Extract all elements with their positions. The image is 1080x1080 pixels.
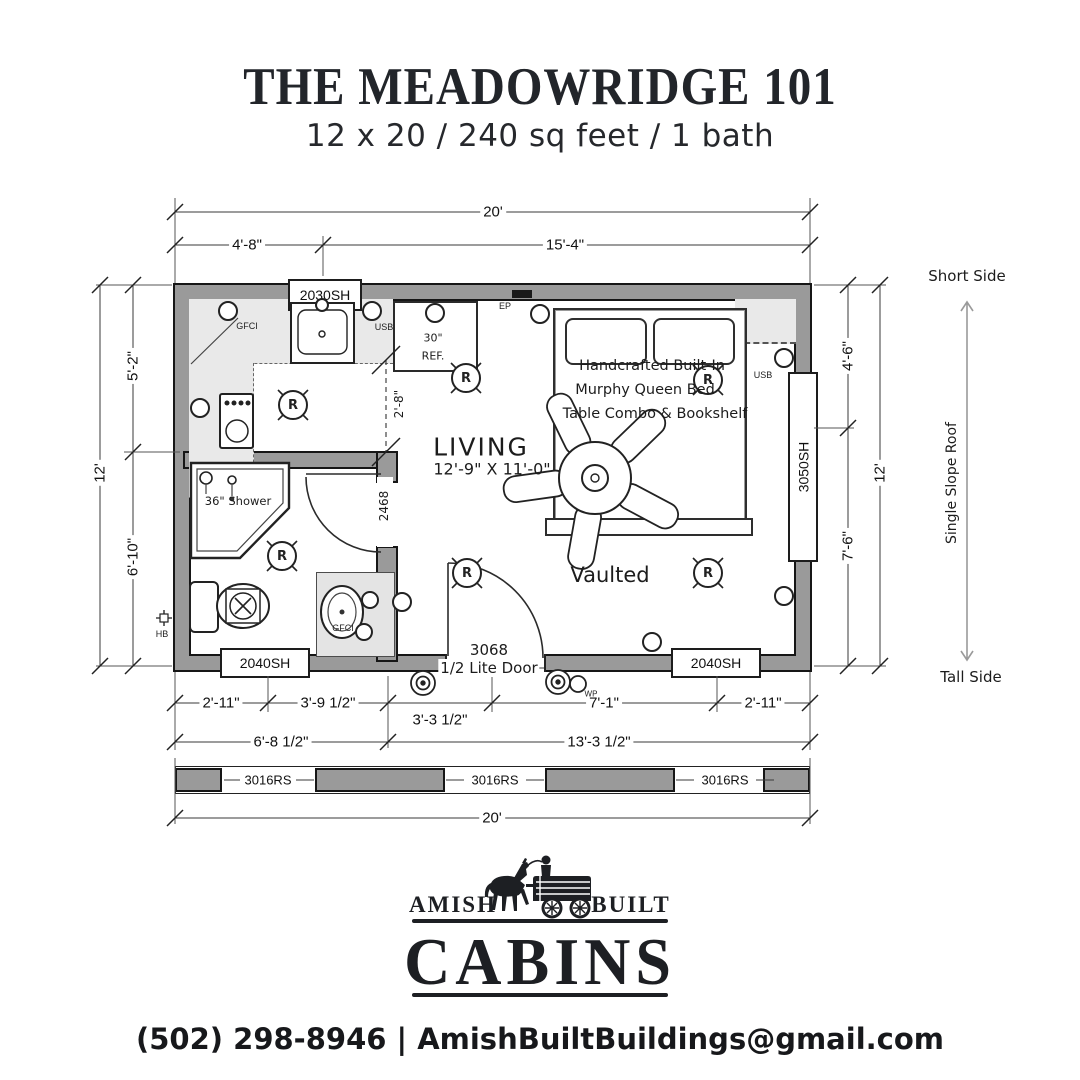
recessed-light-label: R: [277, 549, 287, 564]
dim-left-lower: 6'-10": [125, 535, 142, 579]
window-3016rs-label: 3016RS: [469, 773, 522, 788]
flyer: THE MEADOWRIDGE 101 12 x 20 / 240 sq fee…: [0, 0, 1080, 1080]
dim-top-left: 4'-8": [229, 237, 265, 254]
recessed-light-label: R: [288, 398, 298, 413]
window-3016rs-label: 3016RS: [242, 773, 295, 788]
entry-door-type-label: 1/2 Lite Door: [438, 659, 539, 677]
recessed-light: R: [267, 541, 297, 571]
living-label: LIVING: [433, 433, 529, 462]
fridge-label: REF.: [422, 350, 445, 363]
window-3016rs-label: 3016RS: [699, 773, 752, 788]
bed-note-line3: Table Combo & Bookshelf: [563, 406, 748, 422]
dim-bottom-1: 2'-11": [199, 695, 242, 712]
bed-note-line1: Handcrafted Built-In: [579, 358, 725, 374]
entry-door-size-label: 3068: [468, 641, 510, 659]
brand-built: BUILT: [591, 892, 670, 918]
dim-bottom-2: 3'-9 1/2": [298, 695, 359, 712]
roof-short-side-label: Short Side: [928, 267, 1005, 285]
usb-label-bed: USB: [754, 370, 773, 380]
wp-label: WP: [585, 690, 598, 699]
ep-label: EP: [499, 301, 511, 311]
dim-bottom-total: 20': [479, 810, 505, 827]
recessed-light-label: R: [461, 371, 471, 386]
dim-top-right: 15'-4": [543, 237, 587, 254]
dim-bottom-left-total: 6'-8 1/2": [251, 734, 312, 751]
recessed-light-label: R: [462, 566, 472, 581]
bed-note-line2: Murphy Queen Bed: [575, 382, 715, 398]
dim-right-lower: 7'-6": [840, 528, 857, 564]
dim-kitchen-clearance: 2'-8": [392, 390, 406, 418]
vaulted-label: Vaulted: [570, 563, 649, 587]
hb-label: HB: [156, 629, 169, 639]
dim-top-total: 20': [480, 204, 506, 221]
living-size-label: 12'-9" X 11'-0": [433, 460, 550, 479]
shower-label: 36" Shower: [205, 494, 271, 508]
logo-divider-bottom: [412, 993, 668, 997]
dim-bottom-5: 2'-11": [741, 695, 784, 712]
dim-right-upper: 4'-6": [840, 338, 857, 374]
recessed-light: R: [278, 390, 308, 420]
usb-label-kitchen: USB: [375, 322, 394, 332]
dim-left-upper: 5'-2": [125, 348, 142, 384]
dim-right-total: 12': [872, 460, 889, 486]
dim-bottom-3: 3'-3 1/2": [410, 712, 471, 729]
recessed-light: R: [452, 558, 482, 588]
roof-slope-label: Single Slope Roof: [944, 422, 960, 544]
horse-buggy-logo: [478, 850, 602, 922]
gfci-label-bath: GFCI: [332, 623, 354, 633]
fridge-size-label: 30": [423, 332, 442, 345]
brand-cabins: CABINS: [0, 923, 1080, 1001]
dim-bottom-right-total: 13'-3 1/2": [564, 734, 633, 751]
recessed-light-label: R: [703, 566, 713, 581]
contact-info: (502) 298-8946 | AmishBuiltBuildings@gma…: [0, 1022, 1080, 1056]
recessed-light: R: [451, 363, 481, 393]
bath-door-size-label: 2468: [377, 491, 391, 522]
roof-tall-side-label: Tall Side: [940, 668, 1001, 686]
gfci-label-kitchen: GFCI: [236, 321, 258, 331]
dim-left-total: 12': [92, 460, 109, 486]
recessed-light: R: [693, 558, 723, 588]
